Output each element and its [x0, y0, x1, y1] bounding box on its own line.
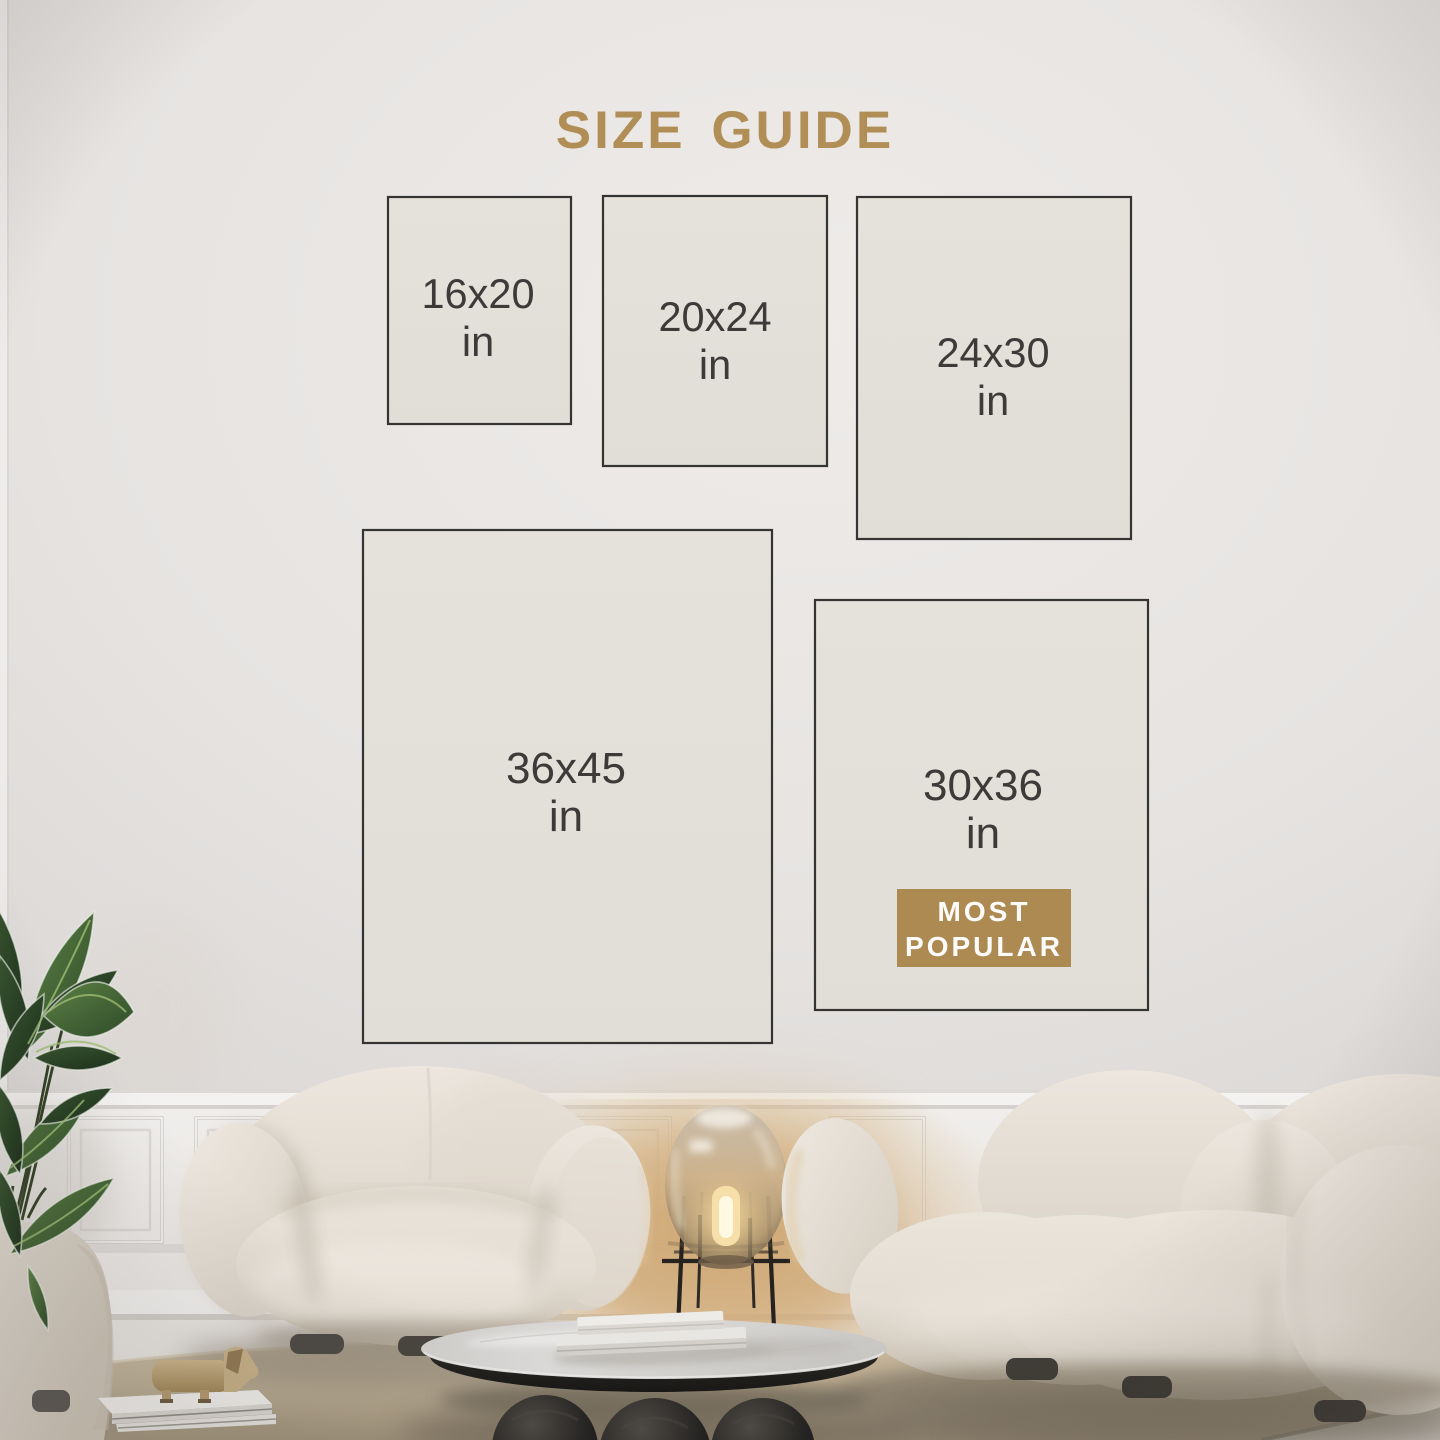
svg-text:in: in: [462, 318, 494, 365]
svg-text:20x24: 20x24: [658, 293, 771, 340]
svg-text:36x45: 36x45: [506, 744, 626, 793]
svg-text:16x20: 16x20: [421, 270, 534, 317]
svg-text:SIZE GUIDE: SIZE GUIDE: [556, 101, 894, 160]
svg-text:24x30: 24x30: [936, 329, 1049, 376]
svg-text:POPULAR: POPULAR: [905, 931, 1063, 962]
svg-text:in: in: [699, 341, 731, 388]
svg-text:MOST: MOST: [938, 896, 1031, 927]
svg-text:in: in: [966, 809, 1000, 858]
svg-text:in: in: [977, 377, 1009, 424]
svg-text:in: in: [549, 792, 583, 841]
svg-text:30x36: 30x36: [923, 761, 1043, 810]
